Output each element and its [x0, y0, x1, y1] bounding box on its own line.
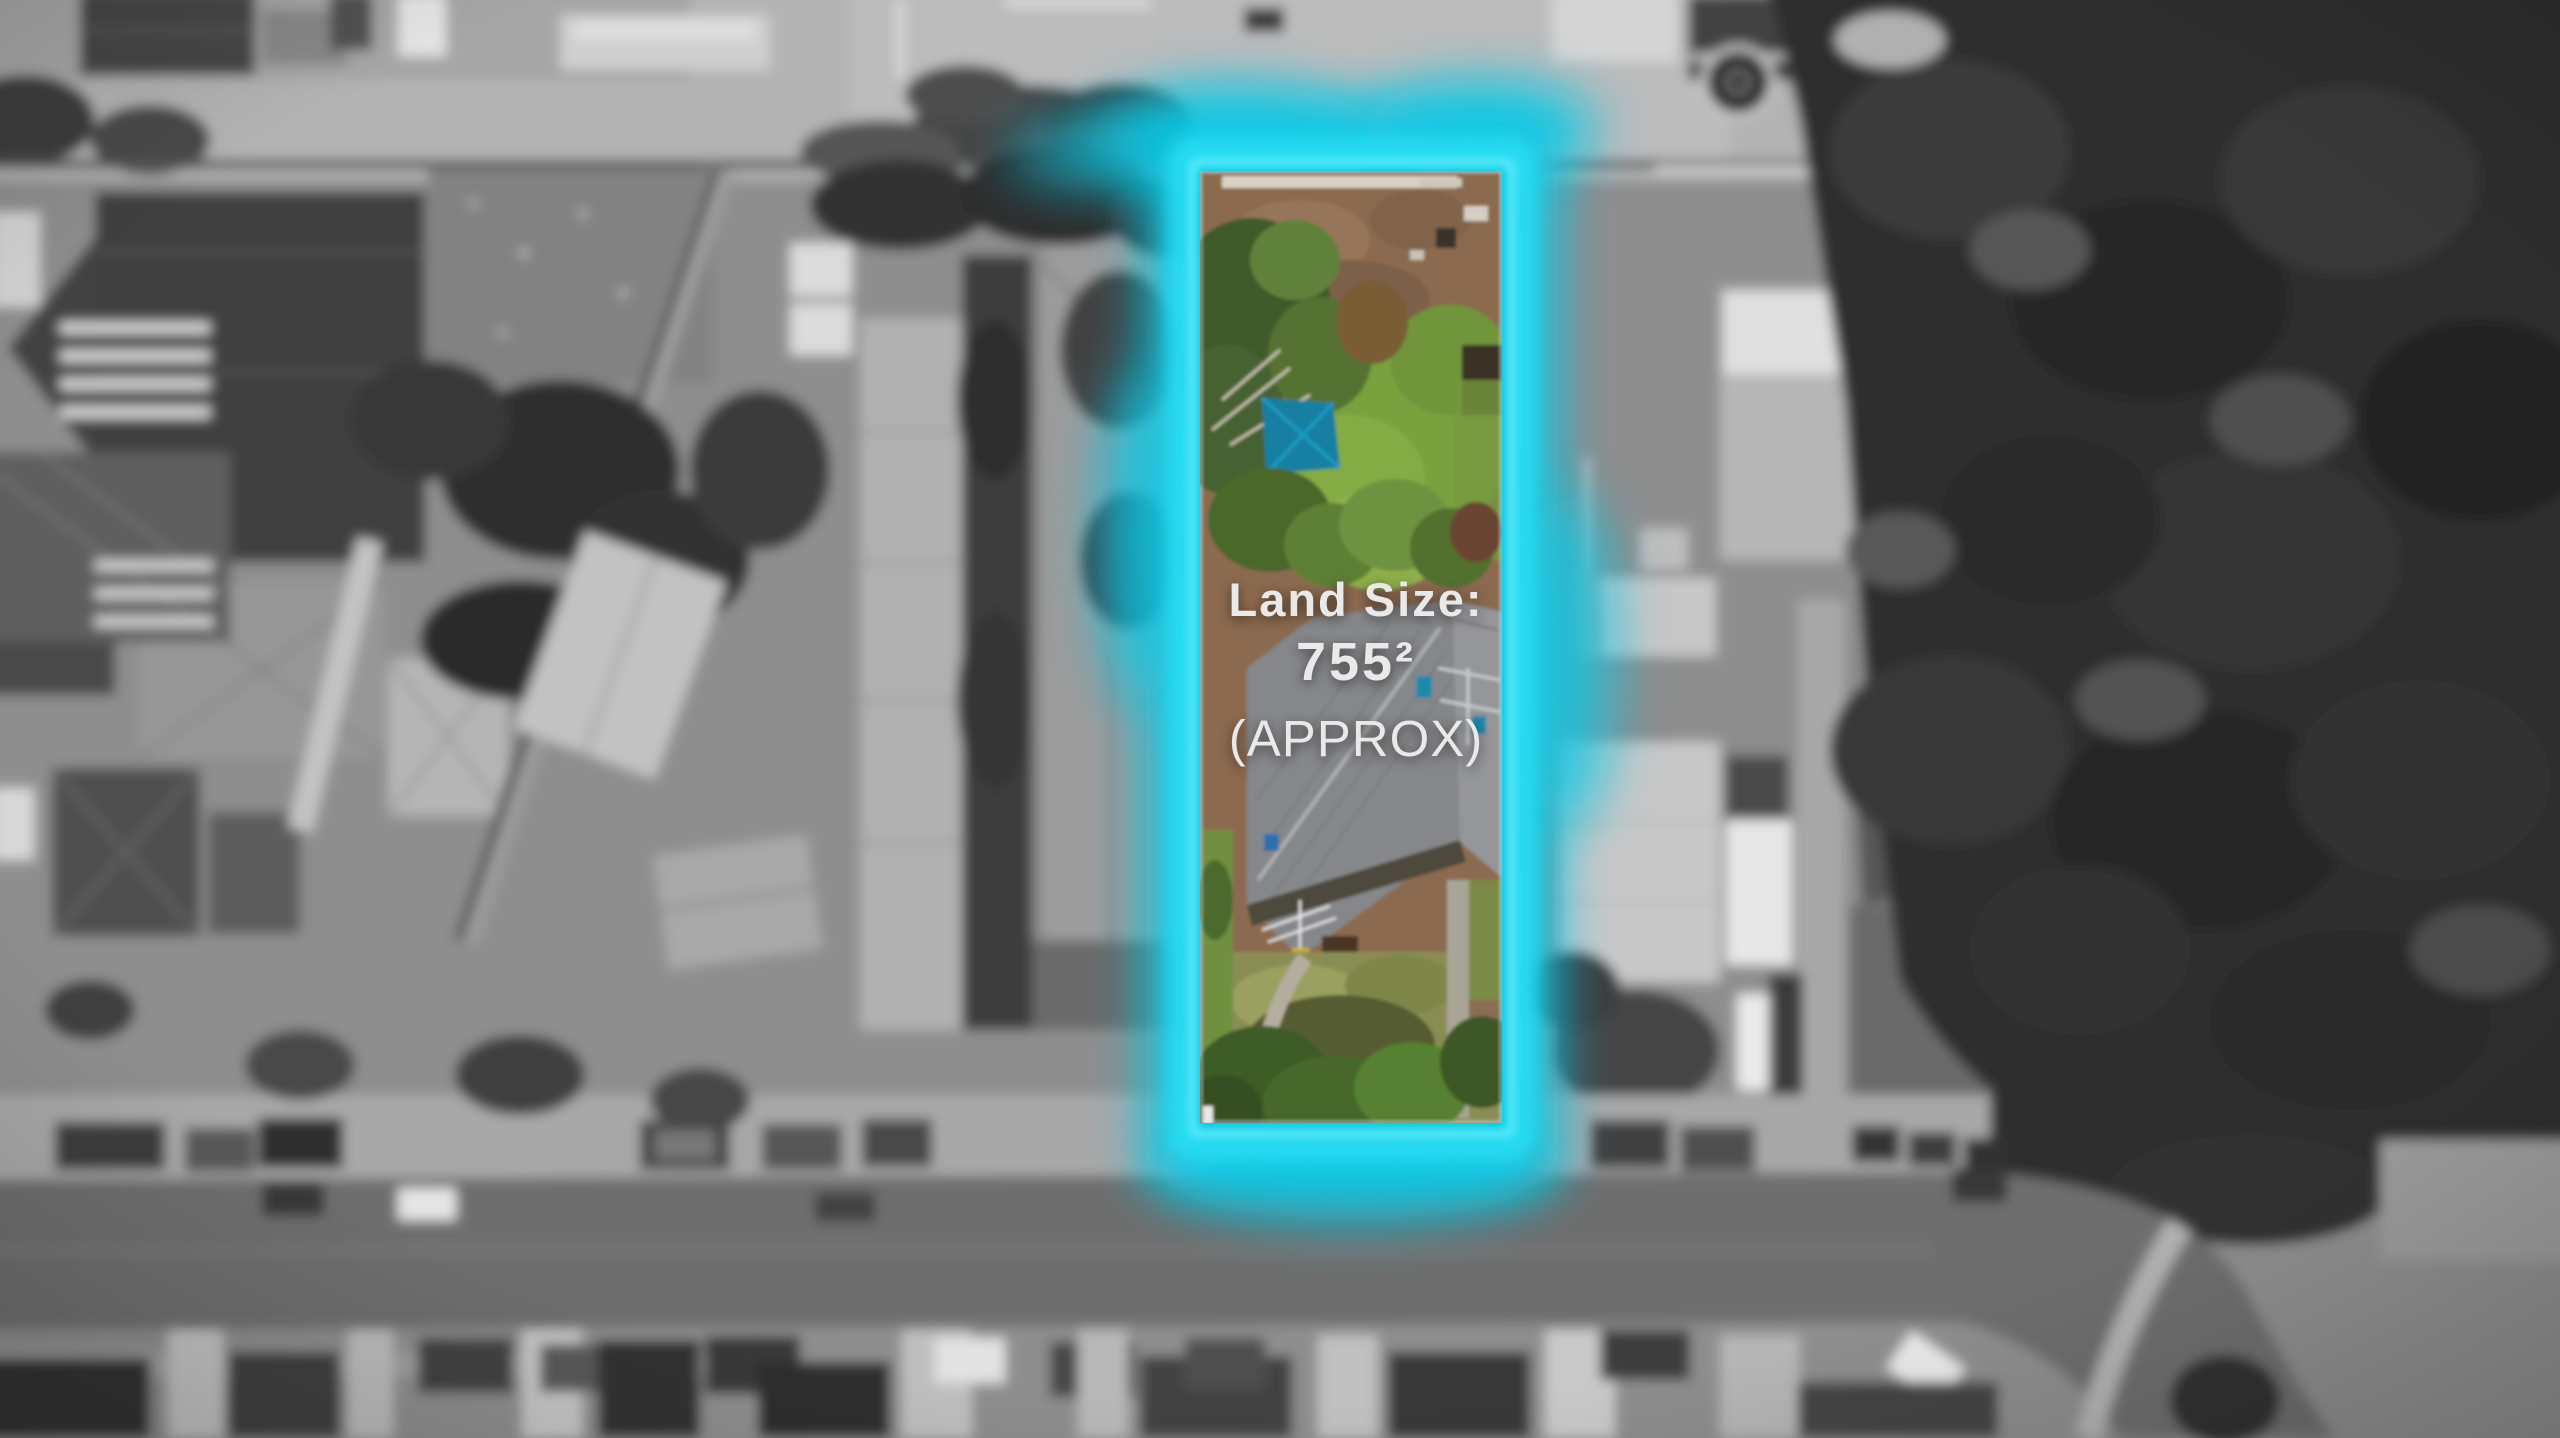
approx-label: (APPROX) [1229, 710, 1484, 767]
aerial-scene: Land Size: 755² (APPROX) [0, 0, 2560, 1438]
land-size-label: Land Size: [1228, 573, 1483, 626]
aerial-property-photo: Land Size: 755² (APPROX) [0, 0, 2560, 1438]
land-size-value: 755² [1296, 632, 1416, 692]
